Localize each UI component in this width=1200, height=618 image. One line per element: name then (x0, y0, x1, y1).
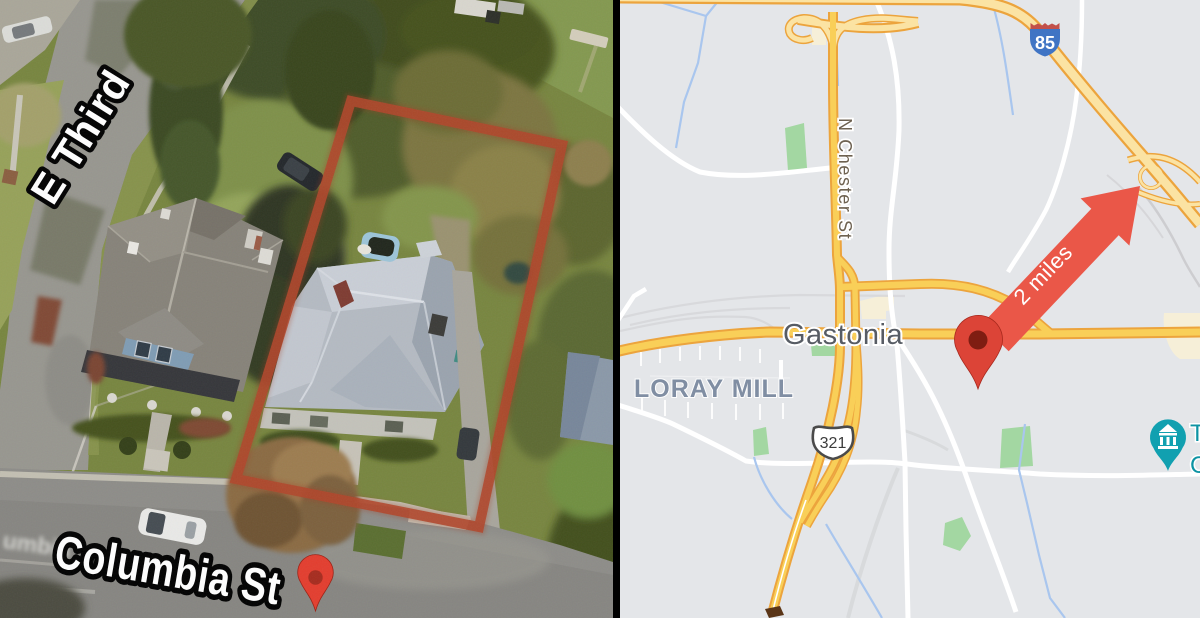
svg-text:N Chester St: N Chester St (835, 118, 855, 240)
svg-text:T: T (1190, 420, 1200, 447)
svg-text:Gastonia: Gastonia (783, 319, 903, 351)
svg-text:321: 321 (820, 435, 847, 452)
svg-text:C: C (1190, 452, 1200, 479)
svg-text:85: 85 (1035, 33, 1055, 53)
svg-text:LORAY MILL: LORAY MILL (634, 375, 794, 403)
